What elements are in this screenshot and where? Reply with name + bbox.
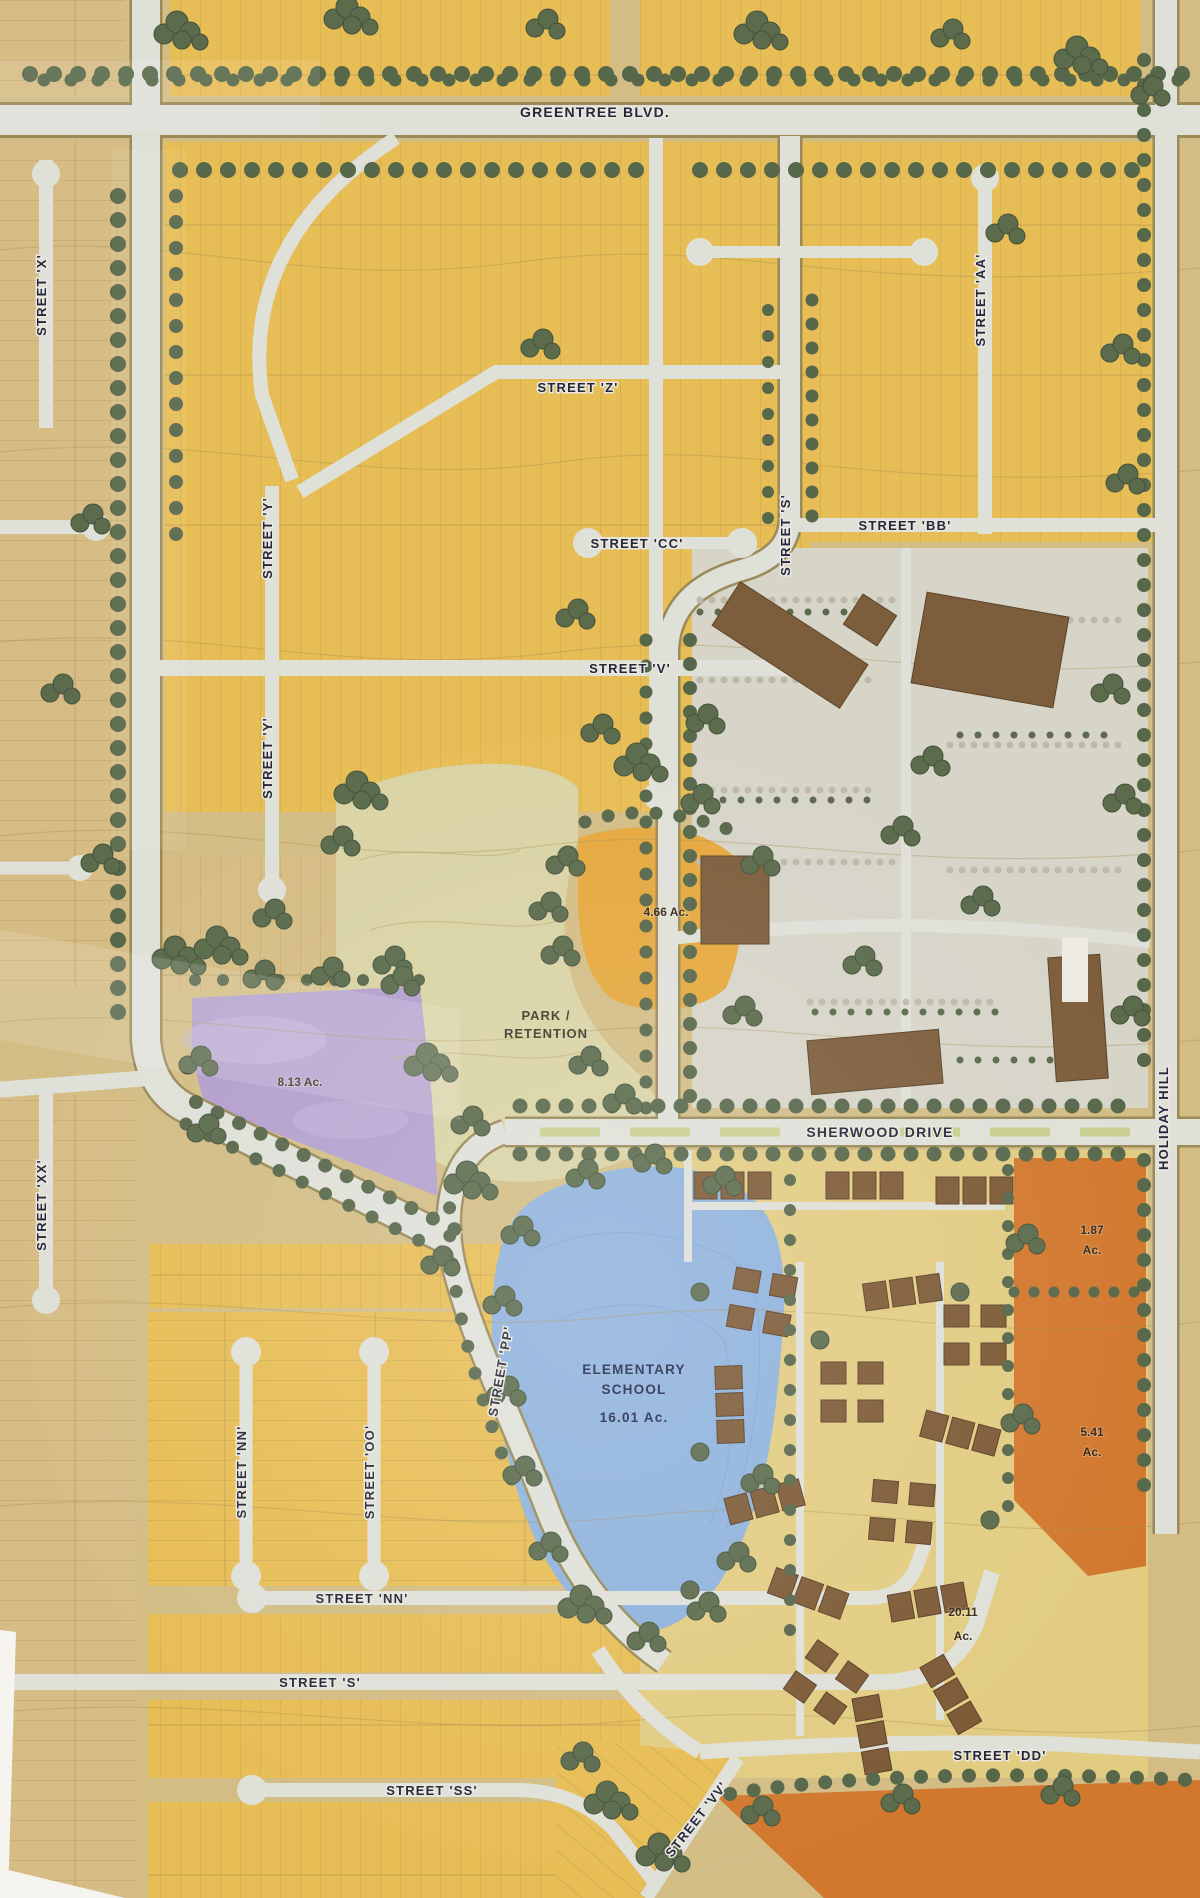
street-cc-label: STREET 'CC' xyxy=(590,536,683,551)
street-bb-label: STREET 'BB' xyxy=(858,518,951,533)
street-aa-label: STREET 'AA' xyxy=(973,253,988,346)
site-plan-map: GREENTREE BLVD. STREET 'X' STREET 'Z' ST… xyxy=(0,0,1200,1898)
street-y-upper-label: STREET 'Y' xyxy=(260,497,275,579)
greentree-blvd-label: GREENTREE BLVD. xyxy=(520,104,670,120)
street-v-label: STREET 'V' xyxy=(589,661,671,676)
street-z-label: STREET 'Z' xyxy=(537,380,618,395)
street-x-label: STREET 'X' xyxy=(34,254,49,336)
street-s-upper-label: STREET 'S' xyxy=(778,494,793,576)
master-plan-photo: GREENTREE BLVD. STREET 'X' STREET 'Z' ST… xyxy=(0,0,1200,1898)
